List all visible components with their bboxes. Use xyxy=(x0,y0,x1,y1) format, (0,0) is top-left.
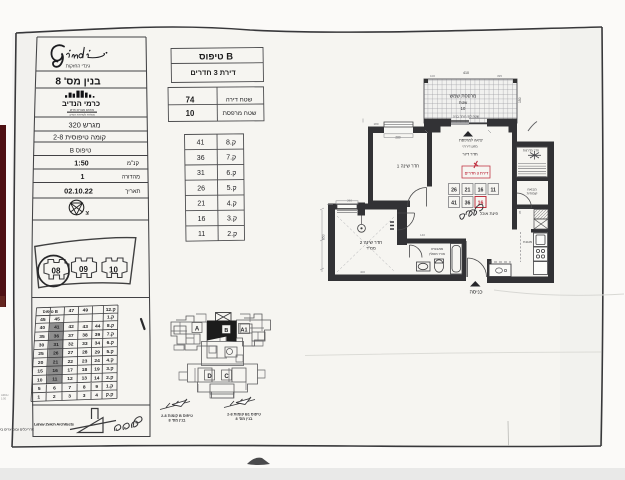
svg-text:ממזרח לשדרות הנדיב: ממזרח לשדרות הנדיב xyxy=(69,113,95,117)
svg-text:10: 10 xyxy=(37,377,43,383)
svg-text:14: 14 xyxy=(94,375,100,381)
svg-text:חדר דיור: חדר דיור xyxy=(462,152,477,157)
svg-text:7.ק: 7.ק xyxy=(226,155,236,162)
svg-text:C: C xyxy=(224,374,229,380)
svg-text:18: 18 xyxy=(82,367,88,373)
svg-text:42: 42 xyxy=(68,324,74,330)
svg-text:26: 26 xyxy=(53,351,59,357)
svg-text:מטבח: מטבח xyxy=(523,240,532,244)
svg-text:בנין מס' 8: בנין מס' 8 xyxy=(169,419,186,423)
svg-text:350: 350 xyxy=(322,234,326,240)
svg-text:24: 24 xyxy=(94,358,100,364)
svg-text:B: B xyxy=(224,328,228,334)
svg-text:260: 260 xyxy=(347,199,352,203)
svg-text:9: 9 xyxy=(95,384,98,390)
svg-text:40: 40 xyxy=(40,325,46,331)
svg-text:בנין מס' 8: בנין מס' 8 xyxy=(55,77,101,88)
svg-text:מתחם מגורים חדש: מתחם מגורים חדש xyxy=(70,108,94,112)
svg-text:A1: A1 xyxy=(241,328,248,334)
svg-text:30: 30 xyxy=(39,343,45,349)
svg-text:חדר שינה 2: חדר שינה 2 xyxy=(360,240,382,245)
svg-text:טיפוס B: טיפוס B xyxy=(43,309,58,314)
svg-text:1:50: 1:50 xyxy=(74,158,88,167)
svg-text:31: 31 xyxy=(197,170,205,177)
svg-text:36: 36 xyxy=(54,333,60,339)
svg-text:29: 29 xyxy=(95,349,101,355)
svg-text:5.ק: 5.ק xyxy=(106,349,113,355)
svg-text:41: 41 xyxy=(197,140,205,147)
svg-text:4.ק: 4.ק xyxy=(227,200,237,207)
svg-text:3: 3 xyxy=(83,393,86,399)
svg-text:אדריכלים ובוני ערים בע"מ: אדריכלים ובוני ערים בע"מ xyxy=(0,428,35,432)
svg-text:1.ק: 1.ק xyxy=(106,384,113,390)
svg-text:3.ק: 3.ק xyxy=(106,366,113,372)
svg-text:7.ק: 7.ק xyxy=(107,332,114,338)
svg-text:410: 410 xyxy=(463,71,469,75)
svg-text:7: 7 xyxy=(68,385,71,391)
svg-text:2: 2 xyxy=(53,394,56,400)
svg-text:11: 11 xyxy=(198,231,205,238)
svg-text:27: 27 xyxy=(68,350,74,356)
svg-text:Lahav Zwich Architects: Lahav Zwich Architects xyxy=(34,422,75,427)
svg-text:מזגן דירתי: מזגן דירתי xyxy=(462,145,478,149)
svg-text:אוויר מאולץ: אוויר מאולץ xyxy=(429,252,446,256)
svg-text:41: 41 xyxy=(451,200,457,206)
svg-text:13: 13 xyxy=(82,376,88,382)
svg-text:180: 180 xyxy=(373,122,378,126)
svg-text:39: 39 xyxy=(95,332,101,338)
svg-text:45: 45 xyxy=(40,317,46,323)
svg-text:45: 45 xyxy=(54,317,60,323)
svg-text:שטח: שטח xyxy=(459,100,468,105)
svg-text:4: 4 xyxy=(95,393,98,399)
svg-text:140: 140 xyxy=(420,233,425,237)
svg-text:חדר מדרגות: חדר מדרגות xyxy=(523,149,539,153)
svg-text:5.ק: 5.ק xyxy=(227,185,237,192)
svg-text:21: 21 xyxy=(465,187,471,193)
svg-text:1: 1 xyxy=(37,395,40,401)
svg-text:21: 21 xyxy=(53,359,59,365)
svg-text:קומה טיפוסית 2-8: קומה טיפוסית 2-8 xyxy=(53,135,106,142)
svg-text:150: 150 xyxy=(518,97,522,103)
svg-text:מרפסת שמש: מרפסת שמש xyxy=(450,95,477,100)
svg-text:4.ק: 4.ק xyxy=(106,358,113,364)
svg-text:טיפוס B: טיפוס B xyxy=(199,51,233,62)
svg-text:100: 100 xyxy=(430,74,435,78)
svg-text:28: 28 xyxy=(82,350,88,356)
svg-text:23: 23 xyxy=(82,358,88,364)
svg-text:צ: צ xyxy=(85,211,89,217)
svg-text:21: 21 xyxy=(197,201,205,208)
svg-text:דירת 3 חדרים: דירת 3 חדרים xyxy=(465,170,490,175)
svg-text:6: 6 xyxy=(53,385,56,391)
svg-text:שטח מרפסת: שטח מרפסת xyxy=(223,110,257,117)
svg-text:3.ק: 3.ק xyxy=(227,216,237,223)
svg-text:5: 5 xyxy=(38,386,41,392)
svg-text:16: 16 xyxy=(478,187,484,193)
svg-text:6.ק: 6.ק xyxy=(107,340,114,346)
svg-text:1.ק: 1.ק xyxy=(107,315,114,321)
svg-text:ממ"ד: ממ"ד xyxy=(366,246,376,251)
svg-text:יציאה למרפסת: יציאה למרפסת xyxy=(459,139,483,143)
svg-text:מגרש 320: מגרש 320 xyxy=(69,120,101,129)
svg-text:10: 10 xyxy=(109,266,118,275)
svg-text:8: 8 xyxy=(83,384,86,390)
svg-text:08: 08 xyxy=(52,267,61,276)
svg-text:26: 26 xyxy=(451,187,457,193)
svg-text:ק.ק: ק.ק xyxy=(106,393,114,398)
svg-text:02.10.22: 02.10.22 xyxy=(64,186,93,195)
svg-text:11: 11 xyxy=(52,377,57,383)
svg-text:41: 41 xyxy=(54,325,60,331)
svg-text:2.ק: 2.ק xyxy=(227,231,237,238)
svg-text:34: 34 xyxy=(95,341,101,347)
svg-text:ARCH: ARCH xyxy=(1,393,8,397)
svg-text:32: 32 xyxy=(68,342,74,348)
svg-text:טיפוס B: טיפוס B xyxy=(70,147,92,154)
svg-text:10: 10 xyxy=(186,109,195,118)
svg-text:20: 20 xyxy=(38,360,44,366)
svg-text:1: 1 xyxy=(81,174,85,181)
svg-text:36: 36 xyxy=(465,200,471,206)
svg-text:טיפוס B1 קומות 2-8: טיפוס B1 קומות 2-8 xyxy=(227,413,261,417)
svg-text:טיפוס B קומות 2-8: טיפוס B קומות 2-8 xyxy=(161,414,193,418)
svg-text:קומתית: קומתית xyxy=(527,192,538,196)
svg-text:תאריך: תאריך xyxy=(125,189,140,195)
svg-text:שטח דירה: שטח דירה xyxy=(226,97,253,104)
svg-text:16: 16 xyxy=(198,216,206,223)
svg-text:26: 26 xyxy=(197,185,205,192)
svg-text:36: 36 xyxy=(197,155,205,162)
svg-text:D: D xyxy=(207,374,212,380)
svg-text:38: 38 xyxy=(82,332,88,338)
svg-text:דירת 3 חדרים: דירת 3 חדרים xyxy=(190,68,236,77)
svg-text:6.ק: 6.ק xyxy=(226,170,236,177)
svg-text:43: 43 xyxy=(82,324,88,330)
svg-text:400: 400 xyxy=(360,270,365,274)
svg-text:בנין מס' 8: בנין מס' 8 xyxy=(236,417,253,421)
svg-text:31: 31 xyxy=(53,342,59,348)
svg-text:35: 35 xyxy=(39,334,45,340)
svg-text:חדר שינה 1: חדר שינה 1 xyxy=(397,164,419,169)
svg-text:שטח לפי היתר בניה: שטח לפי היתר בניה xyxy=(453,115,480,119)
svg-text:3: 3 xyxy=(68,394,71,400)
svg-text:74: 74 xyxy=(186,96,195,105)
svg-text:2.ק: 2.ק xyxy=(106,375,113,381)
svg-text:12: 12 xyxy=(67,376,73,382)
svg-text:אמבטיה: אמבטיה xyxy=(431,247,444,251)
svg-text:1:50: 1:50 xyxy=(1,397,7,401)
svg-text:10: 10 xyxy=(461,106,466,111)
svg-text:37: 37 xyxy=(68,333,74,339)
svg-text:25: 25 xyxy=(38,351,44,357)
svg-text:8.ק: 8.ק xyxy=(226,139,236,146)
svg-text:קנ"מ: קנ"מ xyxy=(127,161,140,167)
svg-text:11: 11 xyxy=(490,187,496,193)
svg-text:15: 15 xyxy=(37,369,43,375)
svg-text:16: 16 xyxy=(52,368,58,374)
svg-text:95: 95 xyxy=(518,210,522,214)
svg-text:גינדי החזקות: גינדי החזקות xyxy=(66,64,90,69)
svg-text:44: 44 xyxy=(95,323,101,329)
svg-text:49: 49 xyxy=(83,308,89,314)
svg-text:395: 395 xyxy=(497,74,502,78)
svg-text:12.ק: 12.ק xyxy=(106,307,116,313)
svg-text:מהדורה: מהדורה xyxy=(122,175,140,181)
svg-text:8.ק: 8.ק xyxy=(107,323,114,329)
svg-text:33: 33 xyxy=(82,341,88,347)
svg-text:כניסה: כניסה xyxy=(469,290,482,296)
svg-text:47: 47 xyxy=(69,308,75,314)
svg-text:22: 22 xyxy=(68,359,74,365)
svg-text:09: 09 xyxy=(79,265,88,274)
svg-text:19: 19 xyxy=(94,367,100,373)
svg-text:17: 17 xyxy=(67,368,73,374)
svg-text:פינת אוכל: פינת אוכל xyxy=(480,211,499,216)
svg-text:A: A xyxy=(195,327,200,333)
